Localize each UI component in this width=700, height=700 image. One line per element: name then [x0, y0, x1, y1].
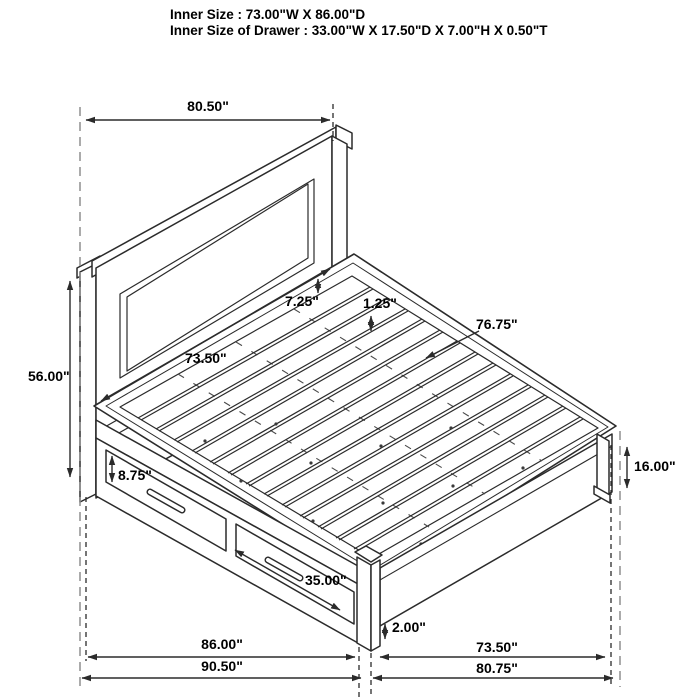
dim-label-overall-depth: 90.50" [201, 659, 243, 674]
dim-label-foot-rail-length: 73.50" [476, 640, 518, 655]
dim-label-headboard-inner-width: 73.50" [185, 351, 227, 366]
title-block: Inner Size : 73.00"W X 86.00"D Inner Siz… [170, 7, 548, 39]
foot-post-front [357, 557, 371, 651]
dim-label-overall-width: 80.75" [476, 661, 518, 676]
dim-label-headboard-height: 56.00" [28, 369, 70, 384]
bed-line-drawing [0, 0, 700, 700]
dim-label-headboard-width: 80.50" [187, 99, 229, 114]
inner-size-note: Inner Size : 73.00"W X 86.00"D [170, 7, 548, 23]
dim-label-slat-thickness: 1.25" [363, 296, 397, 311]
dim-label-footboard-height: 16.00" [634, 459, 676, 474]
headboard-left-post [80, 264, 96, 502]
right-post-front [597, 434, 609, 496]
dim-label-drawer-width: 35.00" [305, 573, 347, 588]
drawer-inner-size-note: Inner Size of Drawer : 33.00"W X 17.50"D… [170, 23, 548, 39]
dim-label-slat-length: 76.75" [476, 317, 518, 332]
dim-label-side-rail-length: 86.00" [201, 637, 243, 652]
foot-post-side [371, 560, 380, 651]
dim-label-drawer-height: 8.75" [118, 468, 152, 483]
dim-label-leg-height: 2.00" [392, 620, 426, 635]
dim-label-panel-offset: 7.25" [285, 294, 319, 309]
bed-dimension-diagram: Inner Size : 73.00"W X 86.00"D Inner Siz… [0, 0, 700, 700]
